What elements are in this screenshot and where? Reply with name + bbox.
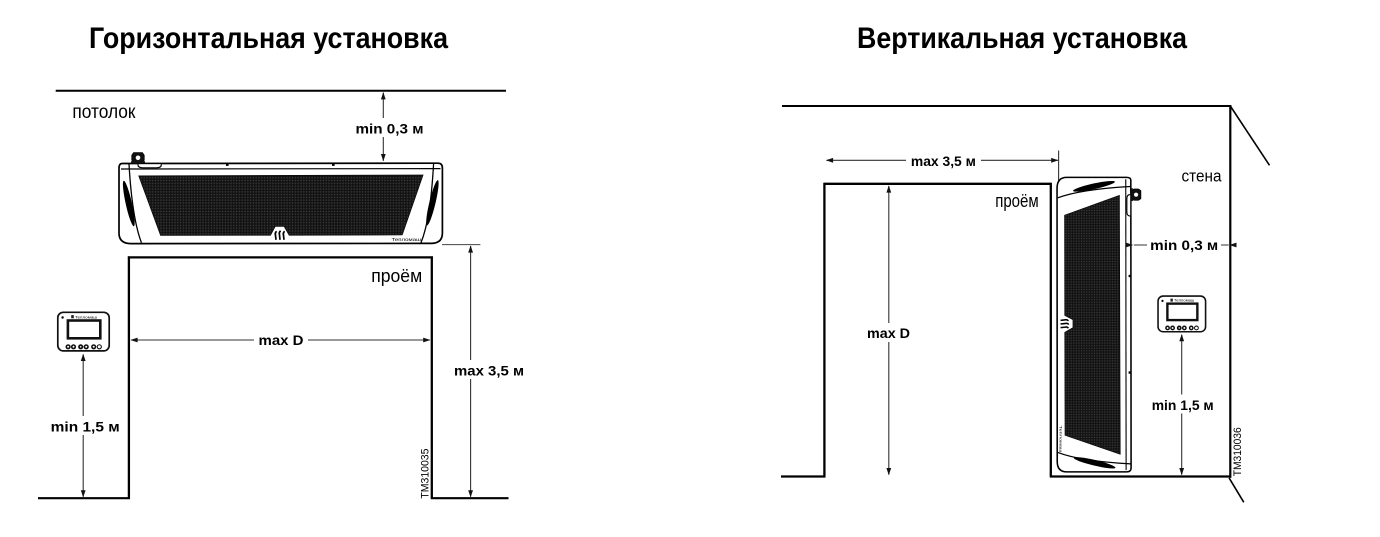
svg-text:min 1,5 м: min 1,5 м	[1152, 397, 1214, 413]
svg-text:TM310035: TM310035	[419, 449, 431, 499]
svg-text:min 1,5 м: min 1,5 м	[51, 418, 120, 434]
svg-text:max D: max D	[867, 325, 910, 341]
svg-text:стена: стена	[1182, 167, 1223, 185]
svg-text:проём: проём	[371, 265, 422, 286]
svg-text:проём: проём	[995, 191, 1038, 211]
svg-text:min 0,3 м: min 0,3 м	[356, 120, 424, 136]
svg-text:max 3,5 м: max 3,5 м	[911, 153, 976, 169]
svg-text:max D: max D	[259, 332, 304, 348]
svg-text:max 3,5 м: max 3,5 м	[454, 362, 524, 378]
svg-text:Вертикальная установка: Вертикальная установка	[857, 22, 1187, 55]
svg-text:TM310036: TM310036	[1232, 427, 1244, 476]
svg-text:потолок: потолок	[72, 101, 135, 123]
svg-text:min 0,3 м: min 0,3 м	[1150, 237, 1218, 253]
svg-text:Горизонтальная установка: Горизонтальная установка	[89, 22, 448, 55]
